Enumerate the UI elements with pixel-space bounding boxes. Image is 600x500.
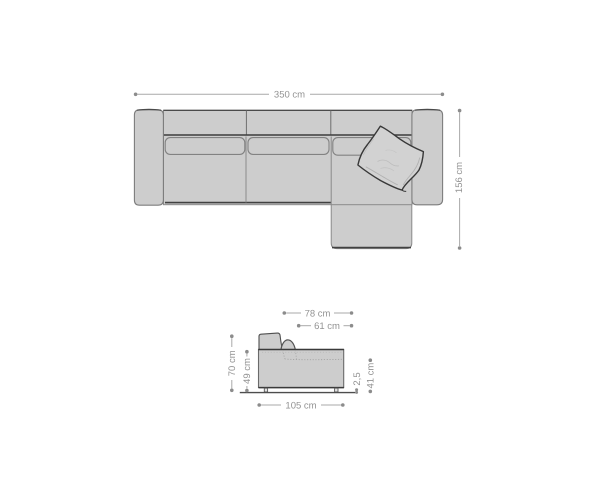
svg-text:41 cm: 41 cm bbox=[366, 363, 377, 389]
svg-text:2,5: 2,5 bbox=[352, 372, 363, 385]
svg-text:156 cm: 156 cm bbox=[454, 162, 465, 193]
svg-text:78 cm: 78 cm bbox=[305, 308, 331, 319]
svg-text:70 cm: 70 cm bbox=[227, 350, 238, 376]
svg-text:61 cm: 61 cm bbox=[314, 321, 340, 332]
svg-text:350 cm: 350 cm bbox=[274, 90, 305, 101]
svg-text:105 cm: 105 cm bbox=[285, 400, 316, 411]
svg-text:49 cm: 49 cm bbox=[242, 358, 253, 384]
